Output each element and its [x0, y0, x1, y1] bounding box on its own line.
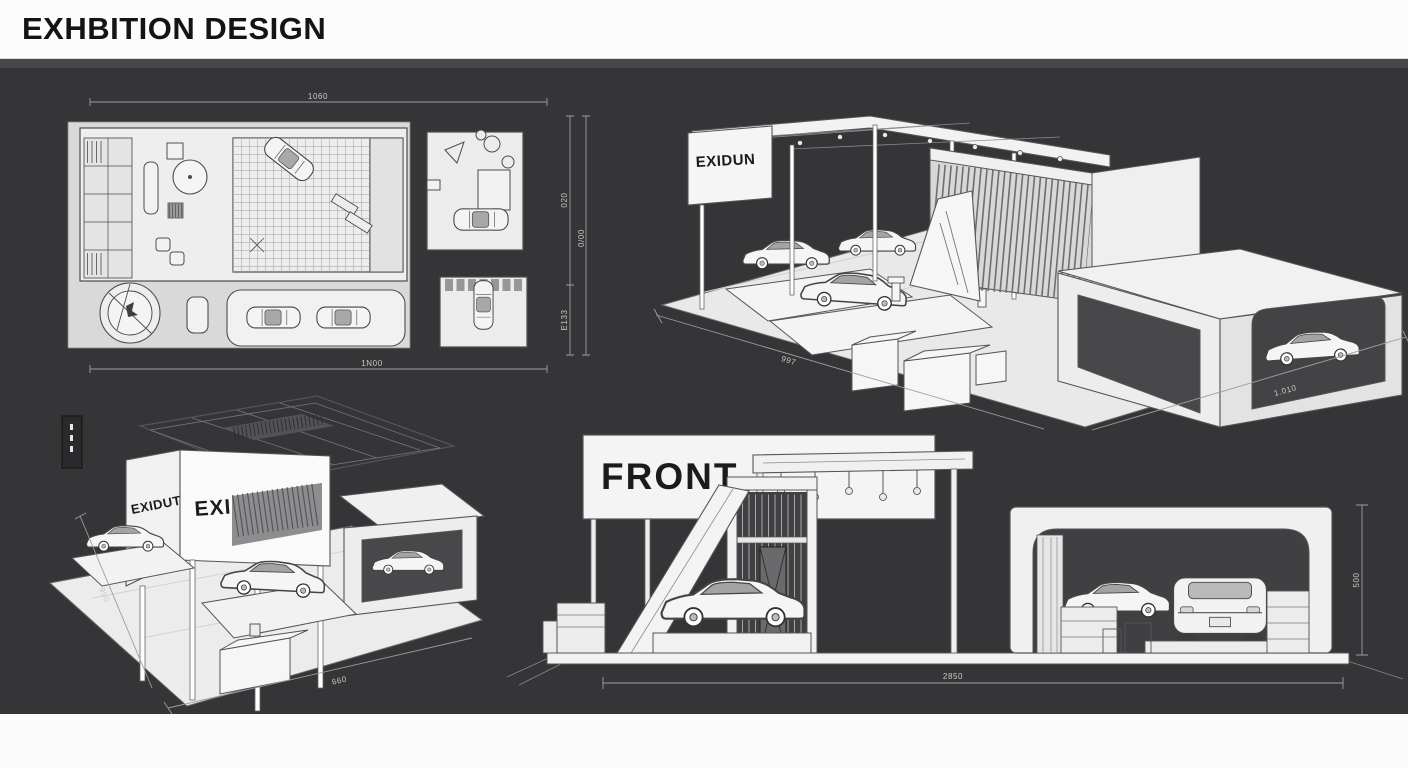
- right-block: [1010, 507, 1332, 653]
- plan-car: [454, 208, 508, 230]
- car: [1173, 578, 1266, 641]
- floor-plan-dim-bottom: 1N00: [90, 359, 547, 373]
- floor-plan-dim-top: 1060: [90, 92, 547, 106]
- dimension-label: 0/00: [577, 229, 586, 247]
- dimension-label: 020: [560, 192, 569, 207]
- elevation-drawing: FRONT: [505, 425, 1408, 713]
- dimension-label: 660: [331, 674, 348, 686]
- elevation-view: FRONT: [505, 425, 1408, 713]
- page-header: EXHBITION DESIGN: [0, 0, 1408, 59]
- plan-lounge-block: [427, 130, 523, 250]
- iso-back-drawing: EXIDUN 997 1.010: [640, 93, 1408, 431]
- plan-car: [474, 281, 494, 330]
- dimension-label: 1060: [308, 92, 328, 101]
- plan-car: [247, 307, 300, 329]
- header-shadow-strip: [0, 59, 1408, 68]
- dimension-label: 500: [1352, 572, 1361, 587]
- right-block: [340, 484, 484, 616]
- dimension-label: 1N00: [361, 359, 383, 368]
- floor-plan-view: 1060 1N00 020 E133 0/00: [60, 88, 610, 388]
- car: [743, 240, 829, 269]
- iso-front-drawing: EXIDUT EXIDUN 990 660: [22, 388, 507, 718]
- page-footer: [0, 714, 1408, 768]
- floor-plan-drawing: 1060 1N00 020 E133 0/00: [60, 88, 610, 388]
- dimension-label: 2850: [943, 672, 963, 681]
- booth-sign: EXIDUN: [688, 126, 772, 205]
- plan-entry-strip: [100, 283, 405, 346]
- iso-back-view: EXIDUN 997 1.010: [640, 93, 1408, 431]
- floor-plan-dim-right: 020 E133 0/00: [560, 116, 590, 355]
- page-title: EXHBITION DESIGN: [22, 11, 326, 47]
- plan-garage-block: [440, 277, 527, 347]
- dimension-label: E133: [560, 309, 569, 330]
- iso-front-view: EXIDUT EXIDUN 990 660: [22, 388, 507, 718]
- side-sign-panel: [62, 416, 82, 468]
- ground-slab: [547, 653, 1349, 664]
- plan-main-hall: [80, 128, 407, 281]
- sign-text: EXIDUN: [695, 151, 755, 171]
- plan-car: [317, 307, 370, 329]
